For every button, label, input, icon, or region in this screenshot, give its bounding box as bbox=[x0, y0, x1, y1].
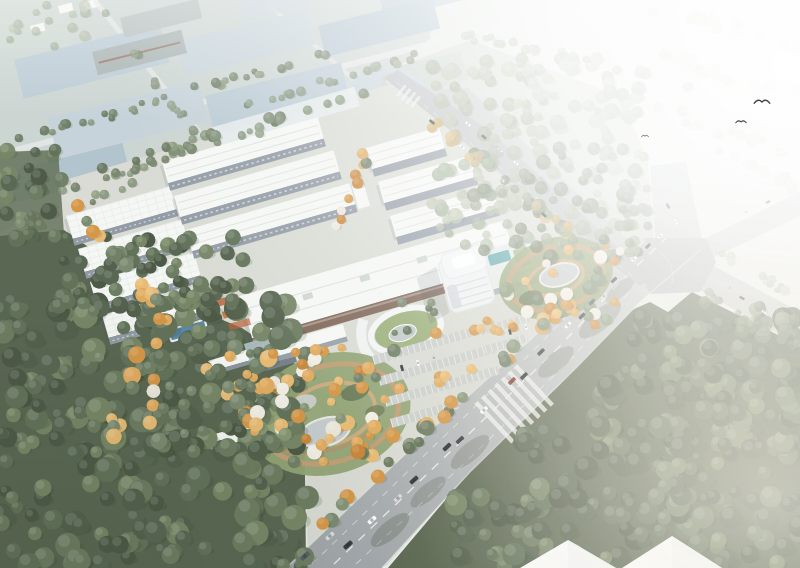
haze-overlays bbox=[0, 0, 800, 568]
atmosphere-film bbox=[0, 0, 800, 568]
aerial-rendering bbox=[0, 0, 800, 568]
aerial-rendering-canvas bbox=[0, 0, 800, 568]
